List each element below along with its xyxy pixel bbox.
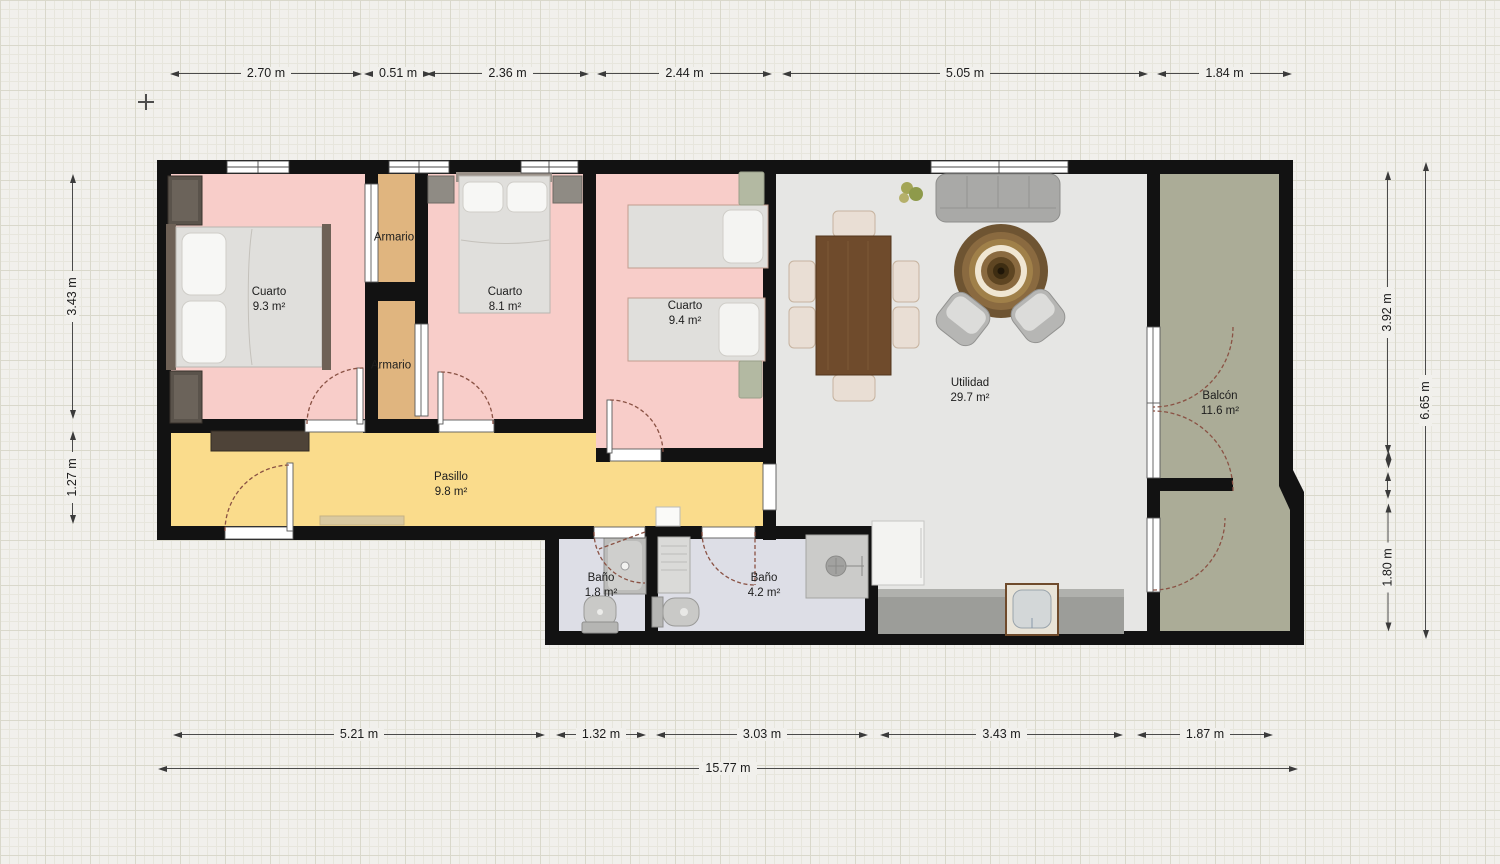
dim-right-overall: 6.65 m (1419, 162, 1432, 639)
dim-bottom-2: 3.03 m (656, 728, 868, 741)
wall-cabinet[interactable] (656, 507, 680, 526)
dim-top-5: 1.84 m (1157, 67, 1292, 80)
dim-right-small-0 (1382, 455, 1395, 469)
entrance-door-threshold[interactable] (225, 527, 293, 539)
room-label-armario1: Armario (374, 231, 414, 246)
dim-top-4: 5.05 m (782, 67, 1148, 80)
dim-top-1: 0.51 m (364, 67, 426, 80)
window[interactable] (931, 161, 1068, 173)
sideboard[interactable] (211, 431, 309, 451)
door-leaf[interactable] (607, 400, 612, 453)
kitchen-sink[interactable] (1006, 584, 1058, 635)
shower-column[interactable] (658, 537, 690, 593)
dim-bottom-3: 3.43 m (880, 728, 1123, 741)
dim-right-small-1 (1381, 472, 1394, 499)
room-label-utilidad: Utilidad29.7 m² (951, 376, 990, 406)
door-leaf[interactable] (357, 368, 363, 424)
fridge[interactable] (872, 521, 924, 585)
room-label-armario2: Armario (371, 359, 411, 374)
window[interactable] (389, 161, 449, 173)
sofa[interactable] (936, 174, 1060, 222)
room-label-bano2: Baño4.2 m² (748, 571, 781, 601)
nightstand[interactable] (553, 176, 582, 203)
doormat[interactable] (320, 516, 404, 525)
closet-door[interactable] (415, 324, 428, 416)
floorplan-canvas[interactable]: Cuarto9.3 m² Armario Armario Cuarto8.1 m… (0, 0, 1500, 864)
room-label-cuarto1: Cuarto9.3 m² (252, 285, 287, 315)
dim-left-1: 1.27 m (66, 431, 79, 524)
shelf[interactable] (739, 172, 764, 205)
balcony-door[interactable] (1147, 518, 1160, 592)
passage-opening[interactable] (763, 464, 776, 510)
dim-top-2: 2.36 m (426, 67, 589, 80)
dim-right-1: 1.80 m (1382, 504, 1395, 632)
kitchen-counter[interactable] (878, 589, 1124, 634)
room-label-cuarto2: Cuarto8.1 m² (488, 285, 523, 315)
single-bed[interactable] (628, 205, 768, 268)
door-threshold[interactable] (305, 420, 365, 432)
dim-bottom-0: 5.21 m (173, 728, 545, 741)
window[interactable] (521, 161, 578, 173)
shower[interactable] (806, 535, 868, 598)
door-threshold[interactable] (702, 527, 755, 538)
french-door[interactable] (1147, 327, 1160, 478)
nightstand[interactable] (428, 176, 454, 203)
dim-bottom-overall: 15.77 m (158, 762, 1298, 775)
door-threshold[interactable] (439, 420, 494, 432)
dim-bottom-4: 1.87 m (1137, 728, 1273, 741)
room-label-pasillo: Pasillo9.8 m² (434, 470, 468, 500)
door-leaf[interactable] (287, 463, 293, 531)
window[interactable] (227, 161, 289, 173)
room-label-cuarto3: Cuarto9.4 m² (668, 299, 703, 329)
dining-table[interactable] (816, 236, 891, 375)
wardrobe[interactable] (170, 371, 202, 423)
dim-top-0: 2.70 m (170, 67, 362, 80)
room-label-bano1: Baño1.8 m² (585, 571, 618, 601)
shelf[interactable] (739, 361, 762, 398)
double-bed[interactable] (166, 224, 331, 370)
dim-bottom-1: 1.32 m (556, 728, 646, 741)
dim-right-0: 3.92 m (1381, 171, 1394, 454)
dim-top-3: 2.44 m (597, 67, 772, 80)
door-threshold[interactable] (610, 449, 661, 461)
door-threshold[interactable] (594, 527, 645, 538)
room-label-balcon: Balcón11.6 m² (1201, 389, 1239, 419)
wardrobe[interactable] (168, 176, 202, 225)
toilet[interactable] (652, 597, 699, 627)
door-leaf[interactable] (438, 372, 443, 424)
toilet[interactable] (582, 596, 618, 633)
dim-left-0: 3.43 m (66, 174, 79, 419)
